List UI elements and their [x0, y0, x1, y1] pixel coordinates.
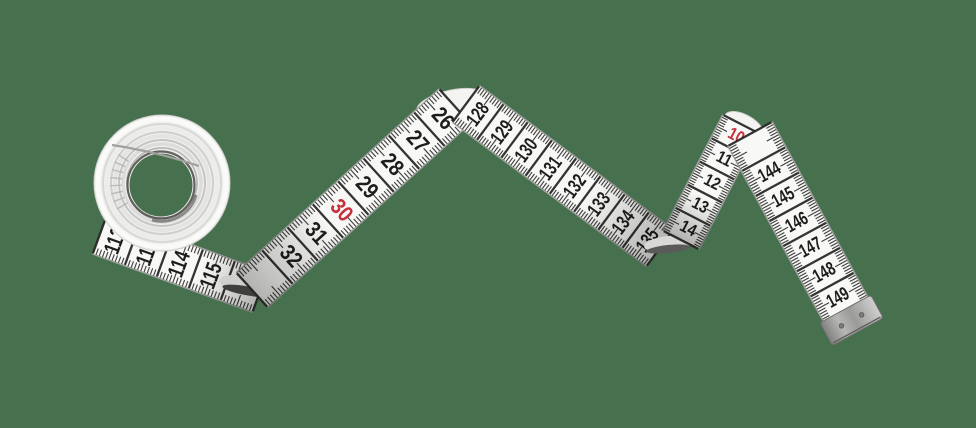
scene-measuring-tape: 1121131141153231302928272612812913013113…	[0, 0, 976, 428]
coil-face-tick	[110, 185, 122, 186]
tape-segment-rise-to-second-peak: 1413121110	[662, 114, 759, 249]
tape-coil	[94, 115, 230, 251]
measuring-tape-illustration: 1121131141153231302928272612812913013113…	[0, 0, 976, 428]
tape-segment-descent-to-tip: 144145146147148149	[725, 120, 884, 345]
tape-segment-descent-from-first-peak: 128129130131132133134135	[452, 85, 674, 267]
tape-segment-rise-to-first-peak: 32313029282726	[236, 88, 471, 307]
coil-hole	[130, 154, 193, 217]
